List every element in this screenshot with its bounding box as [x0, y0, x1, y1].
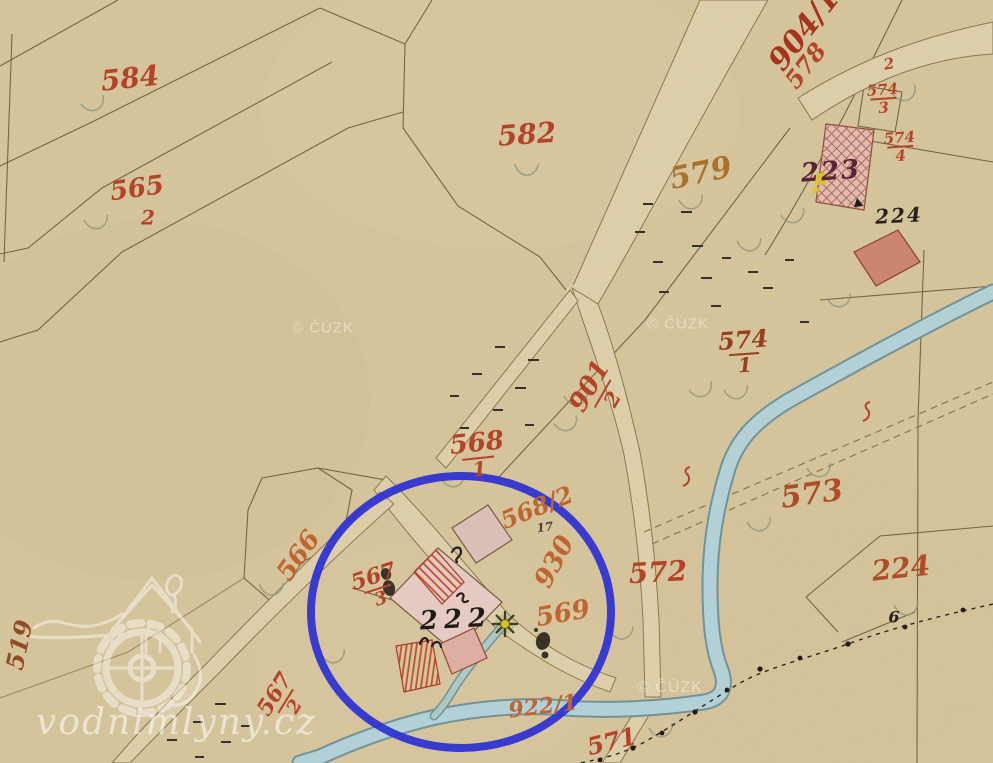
parcel-label-584: 584 [100, 63, 161, 96]
cuzk-watermark: © ČÚZK [292, 320, 354, 337]
denominator: 2 [601, 388, 624, 410]
parcel-label-565: 565 [108, 173, 165, 205]
parcel-label-573: 573 [779, 477, 845, 514]
map-viewport[interactable]: 584 565 2 582 904/1 578 574 3 574 4 2 22… [0, 0, 993, 763]
denominator: 1 [472, 459, 488, 479]
numerator: 568 [449, 428, 506, 458]
parcel-label-582: 582 [497, 120, 557, 151]
site-watermark-text: vodnimlyny.cz [36, 702, 317, 743]
cuzk-watermark: © ČÚZK [647, 316, 709, 333]
denominator: 4 [895, 149, 906, 164]
denominator: 3 [372, 589, 389, 609]
map-canvas [0, 0, 993, 763]
mark-label-17: 17 [536, 521, 554, 535]
denominator: 3 [878, 101, 889, 116]
numerator: 574 [717, 327, 769, 353]
mark-label-6: 6 [888, 609, 899, 624]
parcel-label-574-1: 574 1 [717, 327, 770, 376]
numerator: 574 [866, 82, 898, 98]
numerator: 574 [883, 130, 915, 146]
parcel-label-224-bottom: 224 [871, 553, 932, 586]
cuzk-watermark: © ČÚZK [637, 679, 703, 697]
house-label-224-top: 224 [875, 205, 924, 226]
parcel-label-2-small: 2 [883, 56, 896, 72]
house-label-223: 223 [800, 158, 862, 187]
parcel-label-572: 572 [628, 558, 688, 588]
paper-grain [0, 0, 993, 763]
denominator: 1 [737, 355, 752, 375]
parcel-label-568-1: 568 1 [449, 428, 508, 481]
parcel-label-574-3: 574 3 [866, 82, 900, 117]
parcel-label-574-4: 574 4 [883, 130, 917, 165]
house-label-222: 222 [419, 606, 492, 634]
parcel-label-565-den: 2 [141, 209, 155, 228]
